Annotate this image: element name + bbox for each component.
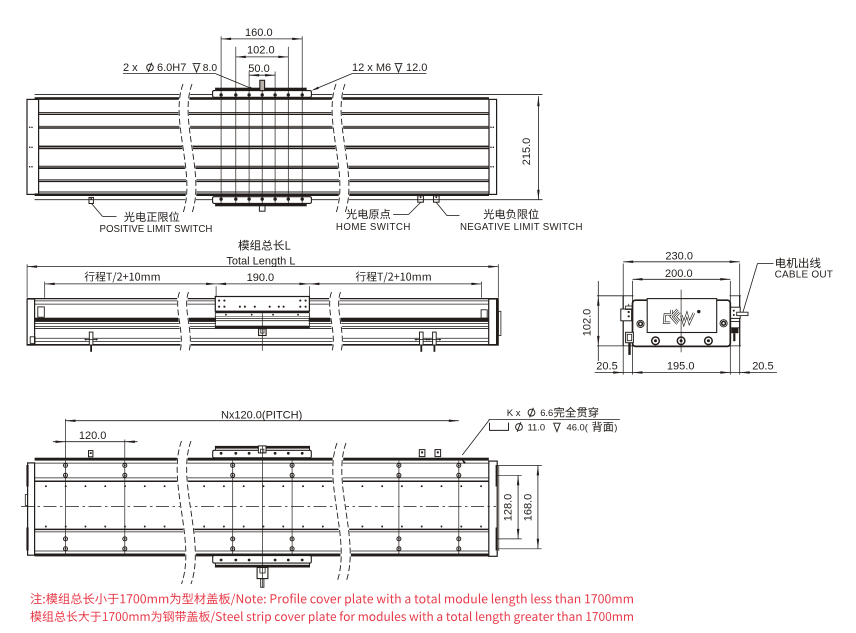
svg-text:6.6: 6.6 <box>540 407 553 418</box>
svg-text:HOME SWITCH: HOME SWITCH <box>336 222 411 233</box>
svg-text:128.0: 128.0 <box>503 494 515 522</box>
svg-text:160.0: 160.0 <box>245 27 273 39</box>
svg-text:11.0: 11.0 <box>528 421 546 432</box>
svg-text:POSITIVE LIMIT SWITCH: POSITIVE LIMIT SWITCH <box>100 224 213 235</box>
svg-text:Total Length L: Total Length L <box>226 255 295 267</box>
svg-text:12.0: 12.0 <box>406 62 427 74</box>
svg-text:120.0: 120.0 <box>79 430 107 442</box>
svg-text:190.0: 190.0 <box>247 272 275 284</box>
svg-text:Nx120.0(PITCH): Nx120.0(PITCH) <box>221 409 302 421</box>
svg-text:195.0: 195.0 <box>667 360 695 372</box>
svg-text:46.0(: 46.0( <box>567 421 589 432</box>
svg-text:): ) <box>614 421 617 432</box>
svg-text:NEGATIVE LIMIT SWITCH: NEGATIVE LIMIT SWITCH <box>460 222 583 233</box>
svg-text:215.0: 215.0 <box>521 138 533 166</box>
svg-text:102.0: 102.0 <box>582 309 594 337</box>
svg-text:6.0H7: 6.0H7 <box>157 62 186 74</box>
svg-text:20.5: 20.5 <box>752 360 773 372</box>
svg-text:102.0: 102.0 <box>247 45 275 57</box>
svg-text:20.5: 20.5 <box>596 360 617 372</box>
svg-text:12 x M6: 12 x M6 <box>352 62 391 74</box>
svg-text:CABLE OUT: CABLE OUT <box>775 270 833 281</box>
svg-text:2 x: 2 x <box>123 62 138 74</box>
svg-text:230.0: 230.0 <box>665 251 693 263</box>
svg-text:8.0: 8.0 <box>203 63 218 74</box>
svg-text:200.0: 200.0 <box>665 268 693 280</box>
svg-text:168.0: 168.0 <box>523 494 535 522</box>
svg-text:K x: K x <box>507 408 521 419</box>
svg-text:50.0: 50.0 <box>248 63 269 75</box>
